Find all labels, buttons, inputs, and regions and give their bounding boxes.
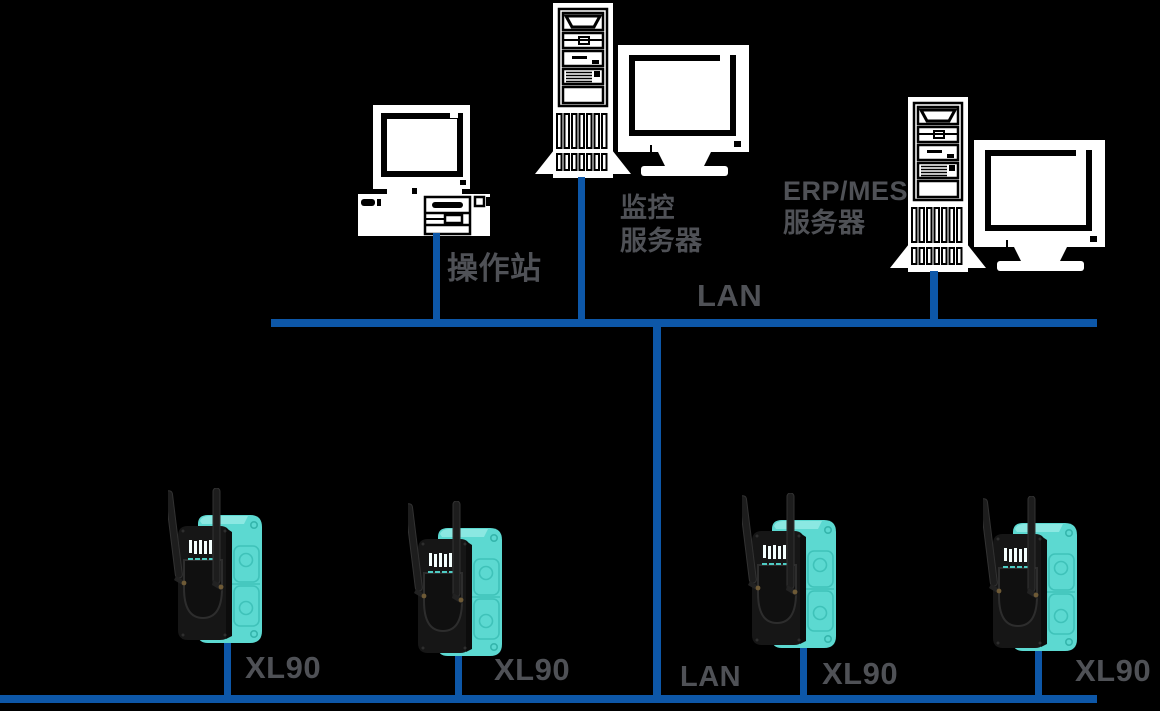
xl90-2-link-line [455,656,462,698]
xl90-1-link-line [224,643,231,698]
xl90-device-icon [168,488,268,648]
operator-station-link-line [433,233,440,321]
erp-mes-server-label-line2: 服务器 [783,208,866,238]
xl90-device-icon [983,496,1083,656]
erp-mes-server-label: ERP/MES服务器 [783,175,908,239]
monitoring-server-monitor-icon [618,45,751,178]
operator-station-label: 操作站 [447,250,542,287]
erp-mes-server-label-line1: ERP/MES [783,176,908,206]
monitoring-server-tower-icon [535,2,631,180]
erp-mes-server-link-line [930,271,938,321]
xl90-device-icon [408,501,508,661]
desktop-computer-icon [350,103,490,237]
xl90-2-label: XL90 [494,651,570,688]
xl90-1-label: XL90 [245,649,321,686]
lan-top-label: LAN [697,277,762,314]
lan-backbone-top-line [271,319,1097,327]
xl90-4-link-line [1035,651,1042,698]
monitoring-server-label-line2: 服务器 [620,226,703,256]
lan-backbone-bottom-line [0,695,1097,703]
xl90-device-icon [742,493,842,653]
network-topology-diagram: 操作站 [0,0,1160,711]
lan-bottom-label: LAN [680,660,741,695]
xl90-4-label: XL90 [1075,652,1151,689]
lan-trunk-line [653,327,661,698]
monitoring-server-label: 监控服务器 [620,192,703,258]
monitoring-server-link-line [578,177,585,321]
xl90-3-label: XL90 [822,655,898,692]
monitoring-server-label-line1: 监控 [620,193,675,223]
erp-mes-server-monitor-icon [974,140,1107,273]
xl90-3-link-line [800,648,807,698]
